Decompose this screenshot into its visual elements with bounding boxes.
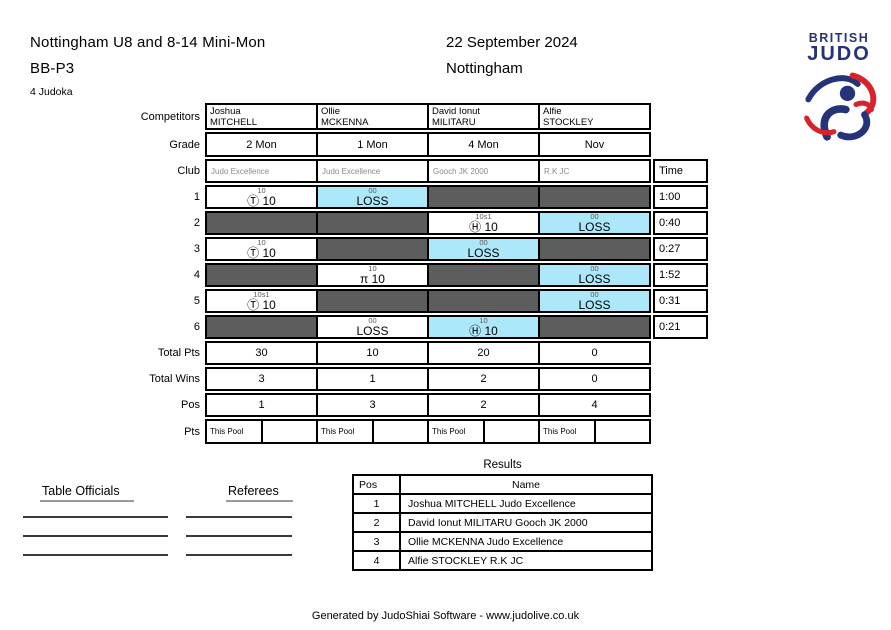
grade-cell: 1 Mon — [318, 134, 429, 155]
score-main: LOSS — [467, 247, 499, 259]
results-pos-header: Pos — [353, 475, 400, 494]
results-name-header: Name — [400, 475, 652, 494]
bye-cell — [540, 317, 649, 337]
tournament-date: 22 September 2024 — [446, 30, 578, 56]
score-main: LOSS — [578, 273, 610, 285]
total-pts-value: 0 — [540, 343, 649, 363]
generator-credit: Generated by JudoShiai Software - www.ju… — [0, 610, 891, 622]
bye-cell — [540, 187, 649, 207]
table-officials-heading: Table Officials — [40, 484, 134, 502]
score-main: LOSS — [578, 299, 610, 311]
pts-empty-box — [372, 419, 430, 444]
grade-row: Grade 2 Mon 1 Mon 4 Mon Nov — [0, 132, 708, 157]
match-cell-win-white: 10s1 Ⓗ 10 — [429, 213, 540, 233]
match-time: 0:21 — [653, 315, 708, 339]
match-cells: 10s1 Ⓣ 10 00 LOSS — [205, 289, 651, 313]
total-pts-row: Total Pts 30 10 20 0 — [0, 341, 708, 365]
match-cell-win-blue: 10 Ⓗ 10 — [429, 317, 540, 337]
total-wins-value: 1 — [318, 369, 429, 389]
pts-empty-box — [483, 419, 541, 444]
bye-cell — [318, 291, 429, 311]
match-cells: 10 π 10 00 LOSS — [205, 263, 651, 287]
match-cell-win-white: 10 Ⓣ 10 — [207, 239, 318, 259]
signature-line — [186, 516, 292, 518]
position-value: 2 — [429, 395, 540, 415]
result-name: Alfie STOCKLEY R.K JC — [400, 551, 652, 570]
bye-cell — [207, 213, 318, 233]
match-number: 5 — [0, 289, 205, 313]
score-main: π 10 — [360, 273, 385, 285]
pts-label: Pts — [0, 419, 205, 444]
signature-line — [23, 554, 168, 556]
logo-text-judo: JUDO — [792, 45, 886, 64]
match-row-3: 3 10 Ⓣ 10 00 LOSS 0:27 — [0, 237, 708, 261]
match-cell-loss-blue: 00 LOSS — [318, 187, 429, 207]
bye-cell — [318, 239, 429, 259]
bye-cell — [318, 213, 429, 233]
score-main: Ⓣ 10 — [247, 247, 276, 259]
total-wins-value: 3 — [207, 369, 318, 389]
match-number: 6 — [0, 315, 205, 339]
bye-cell — [429, 265, 540, 285]
pool-table: Competitors Joshua MITCHELL Ollie MCKENN… — [0, 103, 708, 446]
grade-cell: Nov — [540, 134, 649, 155]
match-row-6: 6 00 LOSS 10 Ⓗ 10 0:21 — [0, 315, 708, 339]
competitors-row: Competitors Joshua MITCHELL Ollie MCKENN… — [0, 103, 708, 130]
time-column-header: Time — [653, 159, 708, 183]
position-cells: 1 3 2 4 — [205, 393, 651, 417]
pts-row: Pts This Pool This Pool This Pool This P… — [0, 419, 708, 444]
match-cells: 10 Ⓣ 10 00 LOSS — [205, 185, 651, 209]
signature-line — [186, 535, 292, 537]
title-block: Nottingham U8 and 8-14 Mini-Mon BB-P3 — [30, 30, 265, 82]
position-row: Pos 1 3 2 4 — [0, 393, 708, 417]
competitor-cell: Joshua MITCHELL — [207, 105, 318, 128]
grade-cell: 4 Mon — [429, 134, 540, 155]
match-cells: 10s1 Ⓗ 10 00 LOSS — [205, 211, 651, 235]
results-row: 1 Joshua MITCHELL Judo Excellence — [353, 494, 652, 513]
match-number: 1 — [0, 185, 205, 209]
competitor-cells: Joshua MITCHELL Ollie MCKENNA David Ionu… — [205, 103, 651, 130]
score-main: Ⓗ 10 — [469, 221, 498, 233]
total-pts-value: 20 — [429, 343, 540, 363]
results-title: Results — [352, 459, 653, 471]
score-main: LOSS — [356, 195, 388, 207]
match-time: 0:27 — [653, 237, 708, 261]
signature-line — [23, 535, 168, 537]
results-section: Results Pos Name 1 Joshua MITCHELL Judo … — [352, 459, 653, 571]
competitor-last-name: STOCKLEY — [543, 117, 646, 128]
result-pos: 1 — [353, 494, 400, 513]
total-pts-cells: 30 10 20 0 — [205, 341, 651, 365]
match-time: 1:52 — [653, 263, 708, 287]
competitor-last-name: MCKENNA — [321, 117, 424, 128]
competitor-cell: David Ionut MILITARU — [429, 105, 540, 128]
tournament-title: Nottingham U8 and 8-14 Mini-Mon — [30, 30, 265, 56]
score-main: Ⓣ 10 — [247, 195, 276, 207]
total-wins-cells: 3 1 2 0 — [205, 367, 651, 391]
result-pos: 2 — [353, 513, 400, 532]
club-cell: Judo Excellence — [318, 161, 429, 181]
match-cell-loss-blue: 00 LOSS — [540, 291, 649, 311]
match-cells: 10 Ⓣ 10 00 LOSS — [205, 237, 651, 261]
judo-figure-icon — [796, 67, 882, 147]
result-pos: 3 — [353, 532, 400, 551]
result-name: David Ionut MILITARU Gooch JK 2000 — [400, 513, 652, 532]
result-name: Joshua MITCHELL Judo Excellence — [400, 494, 652, 513]
match-cell-loss-blue: 00 LOSS — [429, 239, 540, 259]
match-cell-win-white: 10 Ⓣ 10 — [207, 187, 318, 207]
referees-heading: Referees — [226, 484, 293, 502]
competitors-label: Competitors — [0, 103, 205, 130]
pts-empty-box — [594, 419, 652, 444]
match-row-4: 4 10 π 10 00 LOSS 1:52 — [0, 263, 708, 287]
competitor-cell: Alfie STOCKLEY — [540, 105, 649, 128]
club-cells: Judo Excellence Judo Excellence Gooch JK… — [205, 159, 651, 183]
total-wins-row: Total Wins 3 1 2 0 — [0, 367, 708, 391]
match-cells: 00 LOSS 10 Ⓗ 10 — [205, 315, 651, 339]
bye-cell — [429, 291, 540, 311]
match-row-1: 1 10 Ⓣ 10 00 LOSS 1:00 — [0, 185, 708, 209]
score-main: LOSS — [356, 325, 388, 337]
match-number: 3 — [0, 237, 205, 261]
total-wins-value: 0 — [540, 369, 649, 389]
score-main: Ⓗ 10 — [469, 325, 498, 337]
match-cell-loss-blue: 00 LOSS — [540, 213, 649, 233]
pts-boxes: This Pool This Pool This Pool This Pool — [205, 419, 651, 444]
match-time: 0:31 — [653, 289, 708, 313]
total-pts-value: 30 — [207, 343, 318, 363]
match-number: 2 — [0, 211, 205, 235]
club-label: Club — [0, 159, 205, 183]
competitor-last-name: MILITARU — [432, 117, 535, 128]
signature-line — [23, 516, 168, 518]
position-value: 3 — [318, 395, 429, 415]
results-row: 3 Ollie MCKENNA Judo Excellence — [353, 532, 652, 551]
score-main: LOSS — [578, 221, 610, 233]
competitor-last-name: MITCHELL — [210, 117, 313, 128]
this-pool-box: This Pool — [316, 419, 374, 444]
position-value: 1 — [207, 395, 318, 415]
position-value: 4 — [540, 395, 649, 415]
grade-cells: 2 Mon 1 Mon 4 Mon Nov — [205, 132, 651, 157]
date-block: 22 September 2024 Nottingham — [446, 30, 578, 82]
match-cell-loss-white: 00 LOSS — [318, 317, 429, 337]
category-code: BB-P3 — [30, 56, 265, 82]
bye-cell — [207, 265, 318, 285]
pts-empty-box — [261, 419, 319, 444]
bye-cell — [540, 239, 649, 259]
results-table: Pos Name 1 Joshua MITCHELL Judo Excellen… — [352, 474, 653, 571]
match-row-5: 5 10s1 Ⓣ 10 00 LOSS 0:31 — [0, 289, 708, 313]
british-judo-logo: BRITISH JUDO — [792, 32, 886, 152]
club-cell: R.K JC — [540, 161, 649, 181]
competitor-cell: Ollie MCKENNA — [318, 105, 429, 128]
total-pts-label: Total Pts — [0, 341, 205, 365]
competitor-first-name: Joshua — [210, 106, 313, 117]
this-pool-box: This Pool — [538, 419, 596, 444]
judoka-count: 4 Judoka — [30, 86, 73, 98]
grade-label: Grade — [0, 132, 205, 157]
bye-cell — [207, 317, 318, 337]
club-row: Club Judo Excellence Judo Excellence Goo… — [0, 159, 708, 183]
match-row-2: 2 10s1 Ⓗ 10 00 LOSS 0:40 — [0, 211, 708, 235]
this-pool-box: This Pool — [205, 419, 263, 444]
result-pos: 4 — [353, 551, 400, 570]
total-wins-label: Total Wins — [0, 367, 205, 391]
competitor-first-name: David Ionut — [432, 106, 535, 117]
results-row: 2 David Ionut MILITARU Gooch JK 2000 — [353, 513, 652, 532]
total-pts-value: 10 — [318, 343, 429, 363]
match-number: 4 — [0, 263, 205, 287]
match-time: 0:40 — [653, 211, 708, 235]
score-main: Ⓣ 10 — [247, 299, 276, 311]
competitor-first-name: Ollie — [321, 106, 424, 117]
competitor-first-name: Alfie — [543, 106, 646, 117]
position-label: Pos — [0, 393, 205, 417]
results-row: 4 Alfie STOCKLEY R.K JC — [353, 551, 652, 570]
pool-sheet-page: Nottingham U8 and 8-14 Mini-Mon BB-P3 4 … — [0, 0, 891, 630]
result-name: Ollie MCKENNA Judo Excellence — [400, 532, 652, 551]
club-cell: Gooch JK 2000 — [429, 161, 540, 181]
this-pool-box: This Pool — [427, 419, 485, 444]
grade-cell: 2 Mon — [207, 134, 318, 155]
signature-line — [186, 554, 292, 556]
tournament-location: Nottingham — [446, 56, 578, 82]
match-cell-win-white: 10 π 10 — [318, 265, 429, 285]
club-cell: Judo Excellence — [207, 161, 318, 181]
total-wins-value: 2 — [429, 369, 540, 389]
match-time: 1:00 — [653, 185, 708, 209]
match-cell-loss-blue: 00 LOSS — [540, 265, 649, 285]
match-cell-win-white: 10s1 Ⓣ 10 — [207, 291, 318, 311]
results-header-row: Pos Name — [353, 475, 652, 494]
bye-cell — [429, 187, 540, 207]
